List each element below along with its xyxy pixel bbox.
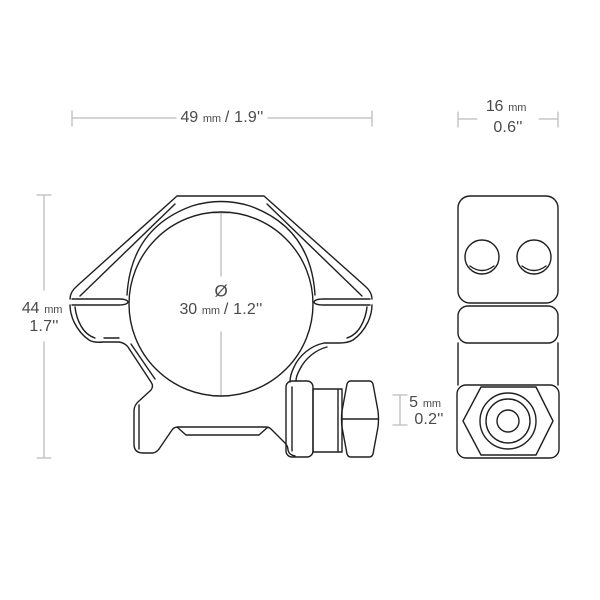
ring-lower-right-outline xyxy=(290,305,372,382)
front-view-drawing xyxy=(70,196,379,457)
dim-base-width-label: 16mm xyxy=(486,99,530,115)
dim-rail-height-value: 5 xyxy=(409,394,418,411)
dim-ring-width-inches: / 1.9'' xyxy=(225,109,264,126)
dim-rail-height-unit: mm xyxy=(423,398,441,410)
side-clamp-block xyxy=(457,385,559,458)
screw-hole-right-counterbore xyxy=(522,266,546,271)
dim-bore-value: 30 xyxy=(180,301,197,318)
dim-bore-inches: / 1.2'' xyxy=(224,301,263,318)
dim-ring-height-inches: 1.7'' xyxy=(29,319,58,335)
dim-base-width-unit: mm xyxy=(508,102,526,114)
bolt-hex-face xyxy=(463,387,553,455)
dim-ring-height-unit: mm xyxy=(44,304,62,316)
ring-cap-inner-line-left xyxy=(80,204,175,296)
clamp-lobe-inner-right xyxy=(347,307,367,338)
dim-ring-width-unit: mm xyxy=(203,113,221,125)
dim-bore-label: 30mm/ 1.2'' xyxy=(180,302,263,318)
dim-base-width-inches: 0.6'' xyxy=(493,120,522,136)
bolt-circle-mid xyxy=(486,399,530,443)
scope-ring-technical-drawing xyxy=(0,0,600,600)
side-ring-band xyxy=(458,306,558,343)
dim-ring-width-value: 49 xyxy=(181,109,198,126)
jaw-concave-inner xyxy=(296,347,327,381)
screw-hole-left xyxy=(465,240,499,274)
dim-base-width-value: 16 xyxy=(486,98,503,115)
bolt-circle-outer xyxy=(480,393,536,449)
clamp-jaw-plate xyxy=(286,381,313,457)
dim-rail-height-label: 5mm xyxy=(409,395,445,411)
clamp-diagonal-inner xyxy=(131,344,155,379)
ring-seam-right xyxy=(314,299,370,305)
dim-ring-height-value: 44 xyxy=(22,300,39,317)
bolt-circle-inner xyxy=(497,410,519,432)
side-view-drawing xyxy=(457,196,559,458)
dim-ring-width-label: 49mm/ 1.9'' xyxy=(181,110,264,126)
side-cap-block xyxy=(458,196,558,303)
ring-seam-left xyxy=(72,299,128,305)
dimension-lines xyxy=(37,111,558,458)
clamp-lobe-inner-left xyxy=(75,307,95,338)
dim-rail-height-inches: 0.2'' xyxy=(414,412,443,428)
side-mid-edges xyxy=(458,343,558,385)
screw-hole-left-counterbore xyxy=(470,266,494,271)
diameter-symbol-icon: Ø xyxy=(214,283,227,300)
ring-cap-inner-line-right xyxy=(267,204,362,296)
dim-bore-unit: mm xyxy=(202,305,220,317)
technical-drawing-page: 49mm/ 1.9'' 16mm 0.6'' 44mm 1.7'' 5mm 0.… xyxy=(0,0,600,600)
rail-slot xyxy=(177,427,268,435)
dim-ring-height-label: 44mm xyxy=(22,301,66,317)
dim-rail-height-lines xyxy=(393,395,407,425)
screw-hole-right xyxy=(517,240,551,274)
